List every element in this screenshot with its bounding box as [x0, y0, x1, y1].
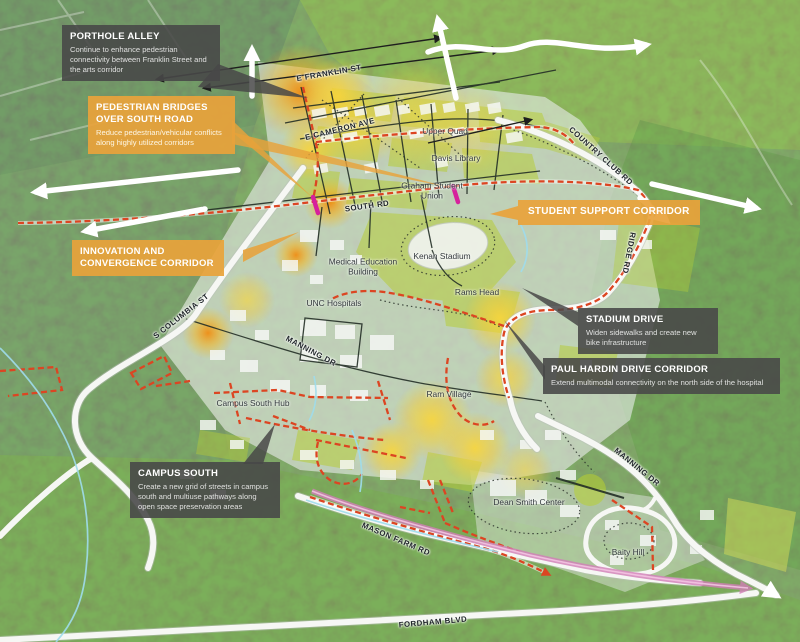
callout-stadium-drive: STADIUM DRIVE Widen sidewalks and create… [578, 308, 718, 354]
callout-title: STUDENT SUPPORT CORRIDOR [528, 206, 690, 219]
place-label-medical-education-building: Medical Education Building [319, 257, 407, 276]
place-label-ram-village: Ram Village [427, 389, 472, 399]
callout-title: PORTHOLE ALLEY [70, 31, 212, 43]
place-label-kenan-stadium: Kenan Stadium [413, 251, 470, 261]
place-label-upper-quad: Upper Quad [422, 126, 468, 136]
callout-body: Reduce pedestrian/vehicular conflicts al… [96, 128, 227, 148]
callout-title: PAUL HARDIN DRIVE CORRIDOR [551, 364, 772, 376]
place-label-baity-hill: Baity Hill [612, 547, 645, 557]
callout-title: STADIUM DRIVE [586, 314, 710, 326]
callout-body: Continue to enhance pedestrian connectiv… [70, 45, 212, 75]
callout-paul-hardin: PAUL HARDIN DRIVE CORRIDOR Extend multim… [543, 358, 780, 394]
campus-framework-map: E FRANKLIN ST E CAMERON AVE COUNTRY CLUB… [0, 0, 800, 642]
place-label-davis-library: Davis Library [432, 153, 481, 163]
place-label-graham-student-union: Graham Student Union [400, 181, 464, 200]
place-label-rams-head: Rams Head [455, 287, 499, 297]
callout-title: PEDESTRIAN BRIDGES OVER SOUTH ROAD [96, 102, 227, 126]
callout-innovation-convergence: INNOVATION AND CONVERGENCE CORRIDOR [72, 240, 224, 276]
callout-porthole-alley: PORTHOLE ALLEY Continue to enhance pedes… [62, 25, 220, 81]
callout-title: INNOVATION AND CONVERGENCE CORRIDOR [80, 246, 216, 270]
callout-pedestrian-bridges: PEDESTRIAN BRIDGES OVER SOUTH ROAD Reduc… [88, 96, 235, 154]
place-label-campus-south-hub: Campus South Hub [213, 399, 293, 409]
callout-campus-south: CAMPUS SOUTH Create a new grid of street… [130, 462, 280, 518]
callout-body: Extend multimodal connectivity on the no… [551, 378, 772, 388]
place-label-unc-hospitals: UNC Hospitals [307, 298, 362, 308]
place-label-dean-smith-center: Dean Smith Center [493, 497, 564, 507]
callout-body: Create a new grid of streets in campus s… [138, 482, 272, 512]
callout-student-support: STUDENT SUPPORT CORRIDOR [518, 200, 700, 225]
callout-body: Widen sidewalks and create new bike infr… [586, 328, 710, 348]
callout-title: CAMPUS SOUTH [138, 468, 272, 480]
